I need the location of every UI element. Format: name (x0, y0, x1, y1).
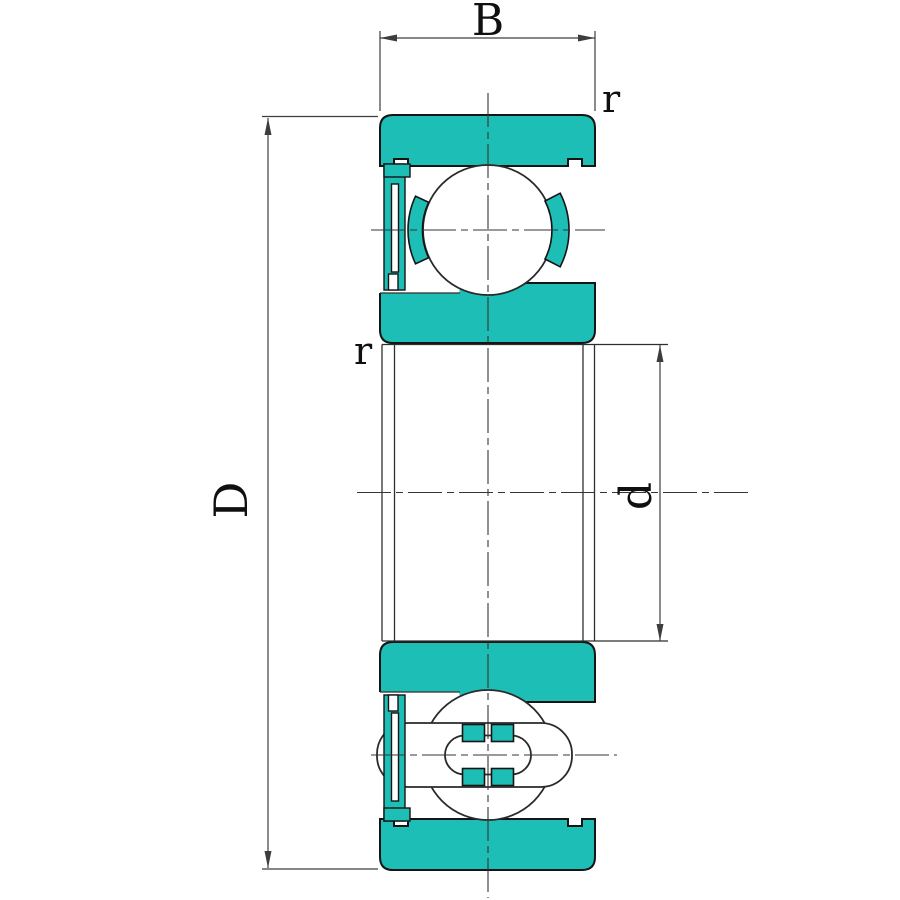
bearing-drawing-canvas: B D d r r (0, 0, 900, 900)
arrowhead-bottom (265, 851, 272, 868)
arrowhead-top (265, 118, 272, 135)
arrowhead-bottom (657, 624, 664, 641)
bearing-cross-section-diagram: B D d r r (0, 0, 900, 900)
shield-upper (384, 164, 410, 290)
shield-foot-notch (389, 274, 399, 290)
rivet-block (492, 769, 514, 786)
arrowhead-top (657, 345, 664, 362)
label-r-outer-corner: r (602, 77, 621, 121)
rivet-block (463, 725, 485, 742)
arrowhead-left (380, 35, 397, 42)
rivet-block (492, 725, 514, 742)
arrowhead-right (578, 35, 595, 42)
label-d: d (611, 482, 662, 510)
dimension-D: D (204, 117, 378, 870)
shield-anchor-head (384, 164, 410, 177)
dimension-d: d (611, 345, 664, 641)
label-r-inner-corner: r (354, 329, 373, 373)
rivet-block (463, 769, 485, 786)
label-B: B (472, 0, 504, 46)
label-D: D (204, 482, 258, 519)
shield-fold-slot (392, 184, 399, 272)
